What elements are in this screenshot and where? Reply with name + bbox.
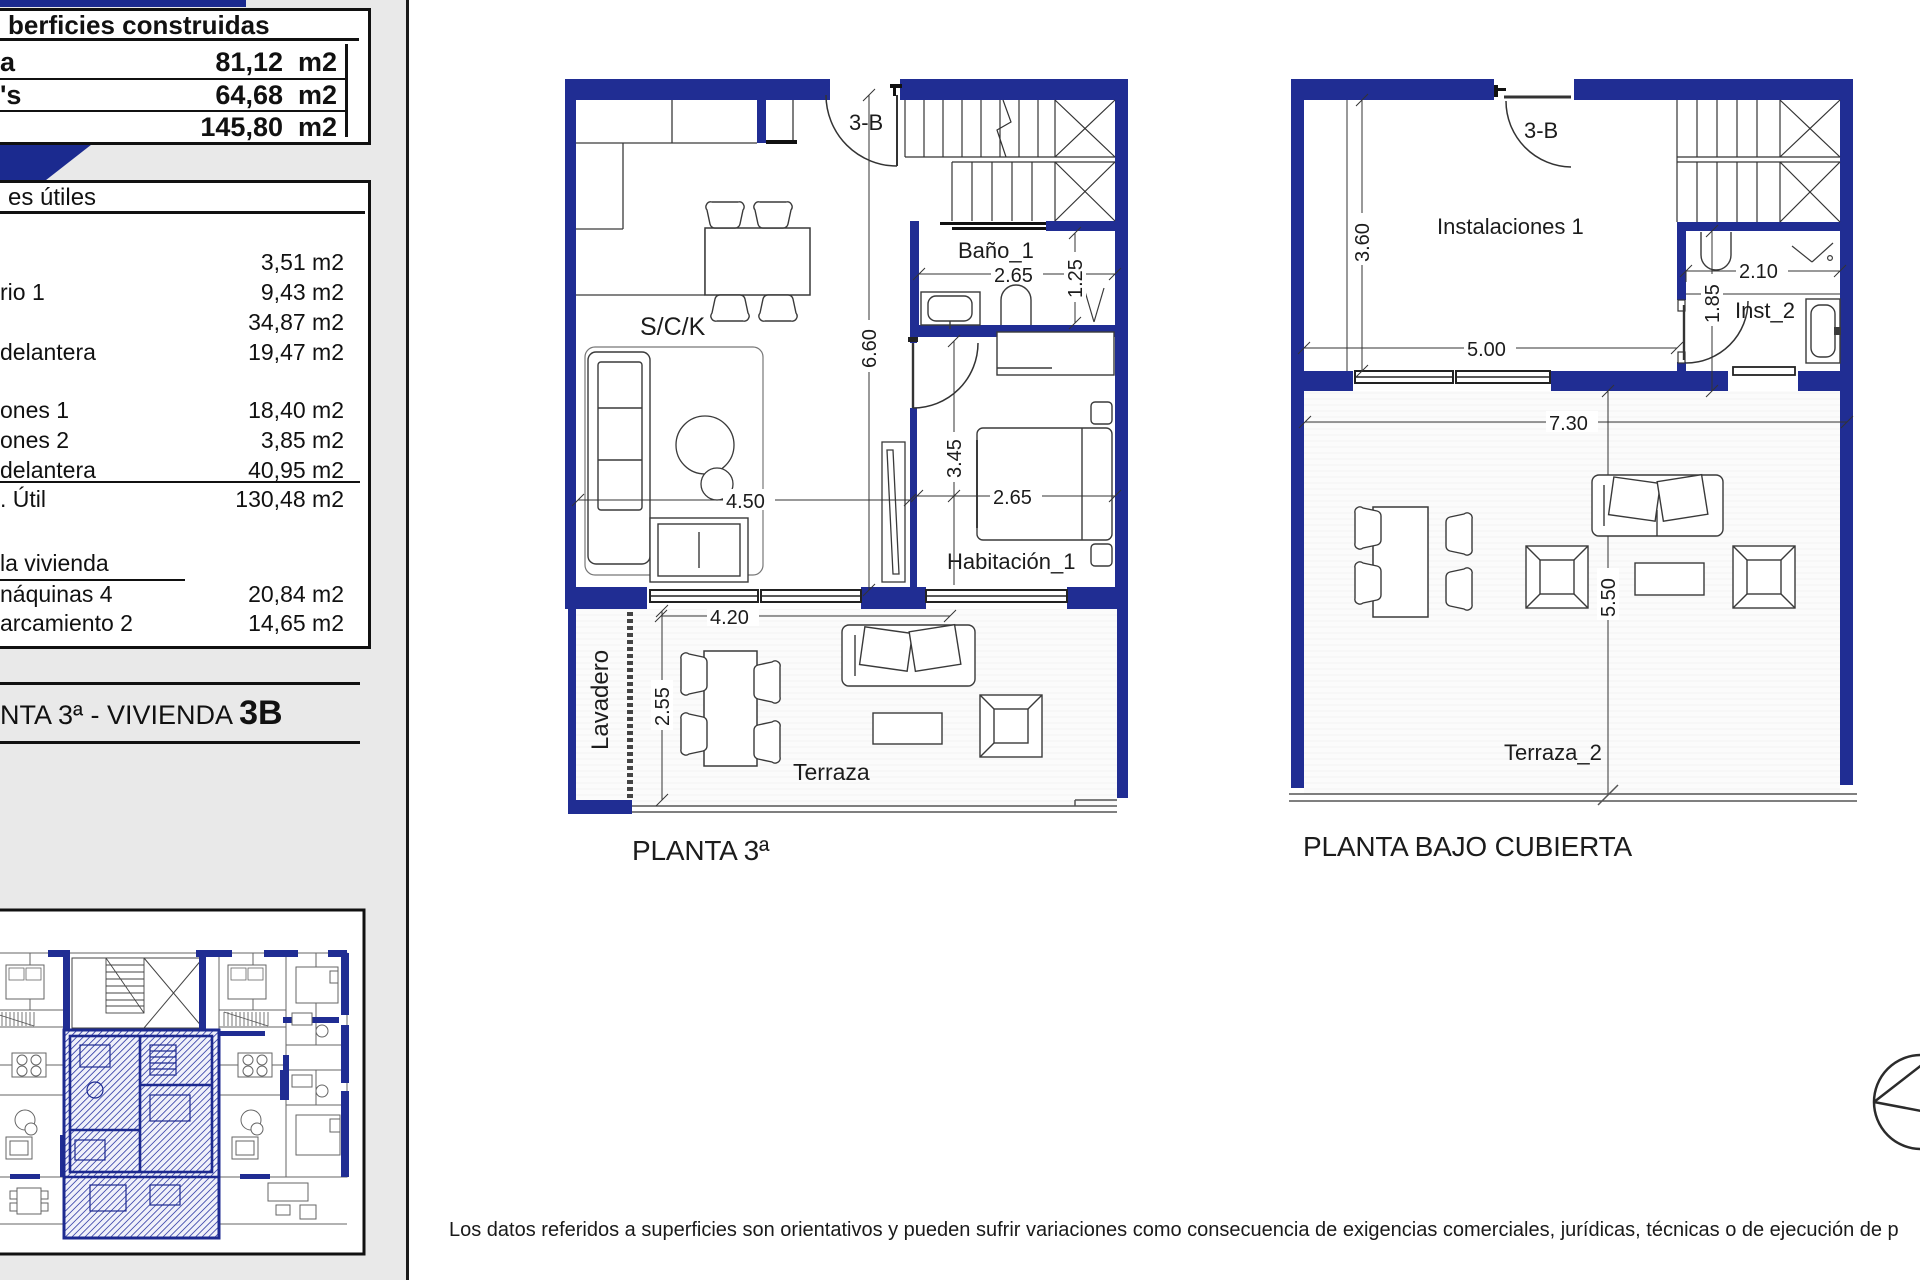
svg-text:4.20: 4.20 bbox=[710, 607, 749, 629]
svg-text:3.60: 3.60 bbox=[1352, 223, 1374, 262]
svg-text:5.50: 5.50 bbox=[1598, 578, 1620, 617]
svg-text:PLANTA BAJO CUBIERTA: PLANTA BAJO CUBIERTA bbox=[1303, 831, 1633, 862]
svg-text:4.50: 4.50 bbox=[726, 491, 765, 513]
svg-text:Baño_1: Baño_1 bbox=[958, 238, 1034, 263]
svg-text:Terraza: Terraza bbox=[793, 759, 870, 785]
svg-text:Habitación_1: Habitación_1 bbox=[947, 549, 1075, 574]
svg-text:1.25: 1.25 bbox=[1065, 259, 1087, 298]
svg-text:S/C/K: S/C/K bbox=[640, 313, 706, 341]
svg-text:2.65: 2.65 bbox=[993, 487, 1032, 509]
svg-text:2.65: 2.65 bbox=[994, 265, 1033, 287]
svg-text:3.45: 3.45 bbox=[944, 439, 966, 478]
svg-text:5.00: 5.00 bbox=[1467, 339, 1506, 361]
svg-text:3-B: 3-B bbox=[1524, 118, 1558, 143]
svg-text:2.10: 2.10 bbox=[1739, 261, 1778, 283]
svg-text:2.55: 2.55 bbox=[652, 687, 674, 726]
svg-text:Lavadero: Lavadero bbox=[587, 650, 614, 750]
svg-text:7.30: 7.30 bbox=[1549, 413, 1588, 435]
svg-text:3-B: 3-B bbox=[849, 110, 883, 135]
svg-text:Inst_2: Inst_2 bbox=[1735, 298, 1795, 323]
svg-text:6.60: 6.60 bbox=[859, 329, 881, 368]
svg-text:Instalaciones 1: Instalaciones 1 bbox=[1437, 214, 1584, 239]
svg-text:Terraza_2: Terraza_2 bbox=[1504, 740, 1602, 765]
svg-text:1.85: 1.85 bbox=[1702, 284, 1724, 323]
svg-text:PLANTA 3ª: PLANTA 3ª bbox=[632, 835, 770, 866]
